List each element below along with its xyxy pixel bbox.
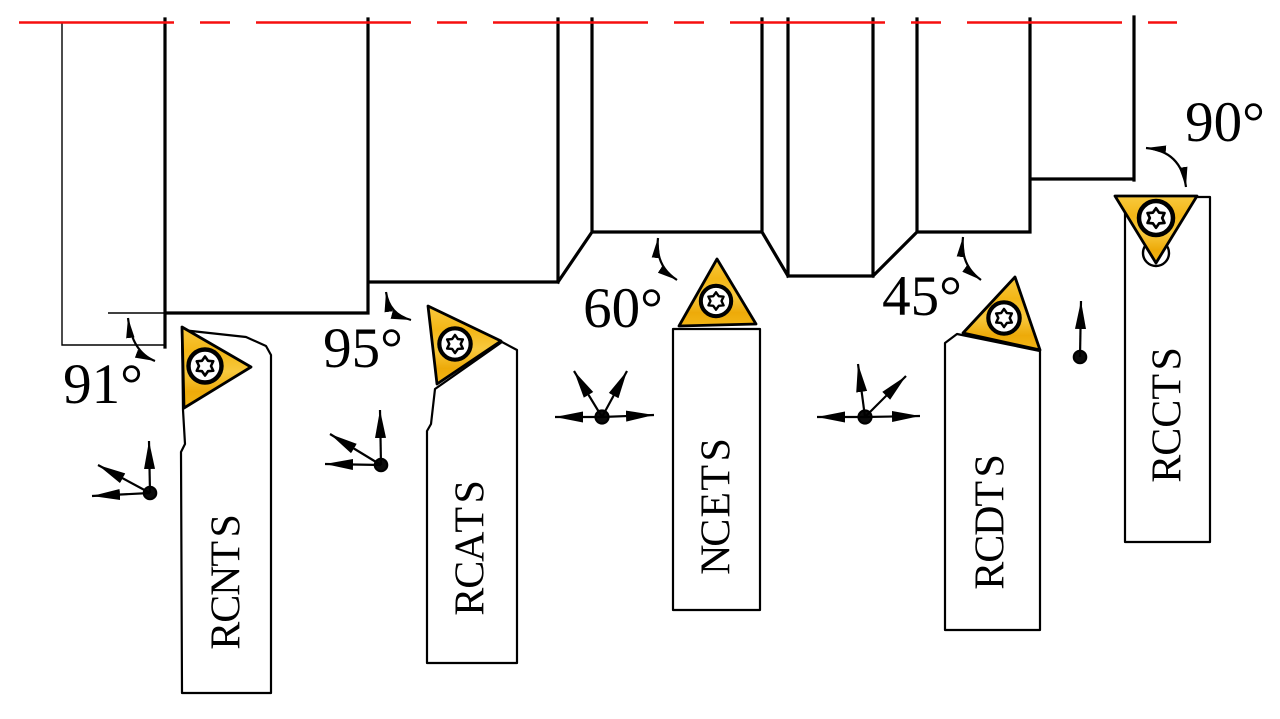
feed-arrow-right — [602, 415, 654, 417]
tool-label-char: R — [976, 552, 1004, 600]
tool-label-char: R — [1153, 445, 1181, 493]
angle-label-stdcr: 45° — [862, 268, 982, 326]
feed-arrow-up — [1080, 301, 1081, 357]
lathe-tools-diagram: 91° 95° 60° 45° 90° STNCR STACR STECN ST… — [0, 0, 1280, 719]
angle-arc-stecn — [658, 238, 677, 280]
feed-arrows-stdcr — [817, 364, 920, 424]
tool-label-stdcr: STDCR — [966, 452, 1014, 590]
torx-screw-icon — [439, 328, 470, 359]
feed-arrow-up — [380, 410, 381, 465]
torx-screw-icon — [701, 286, 731, 316]
feed-arrows-stecn — [555, 371, 654, 424]
angle-label-stecn: 60° — [563, 280, 683, 338]
feed-arrows-stacr — [325, 410, 387, 471]
torx-screw-icon — [1139, 201, 1173, 235]
diagram-drawing — [0, 0, 1280, 719]
angle-label-stacr: 95° — [303, 320, 423, 378]
feed-arrow-left — [92, 493, 150, 496]
feed-arrow-right — [865, 416, 920, 417]
tool-label-char: R — [456, 578, 484, 626]
feed-arrow-left — [325, 464, 381, 465]
feed-arrow-up-left — [574, 371, 602, 417]
tool-label-stacr: STACR — [446, 478, 494, 616]
tool-label-stncr: STNCR — [202, 512, 250, 650]
tool-label-stccr: STCCR — [1143, 345, 1191, 483]
angle-arc-stacr — [386, 292, 411, 320]
feed-arrow-up-left — [330, 434, 381, 465]
angle-arc-stccr — [1146, 148, 1186, 187]
angle-label-stncr: 91° — [43, 356, 163, 414]
feed-arrow-up — [149, 441, 150, 493]
feed-arrow-up-right — [602, 371, 627, 417]
workpiece-thin-outline — [62, 22, 165, 345]
feed-arrows-stccr — [1074, 301, 1086, 363]
feed-arrow-up-right — [865, 376, 906, 417]
feed-arrows-stncr — [92, 441, 156, 499]
feed-arrow-up — [858, 364, 865, 417]
angle-label-stccr: 90° — [1165, 94, 1280, 152]
tool-label-stecn: STECN — [692, 436, 740, 574]
tool-label-char: R — [212, 612, 240, 660]
feed-arrow-up-left — [98, 465, 150, 493]
tool-label-char: N — [702, 536, 730, 584]
torx-screw-icon — [988, 302, 1019, 333]
torx-screw-icon — [189, 350, 222, 383]
